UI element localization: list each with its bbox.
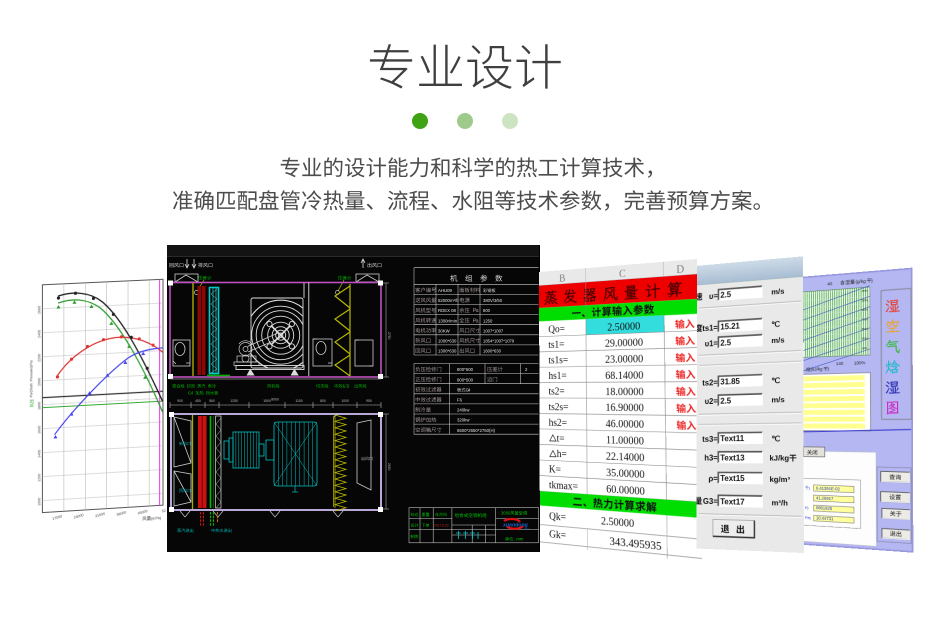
- svg-text:Text15: Text15: [720, 475, 745, 484]
- svg-text:m/s: m/s: [771, 396, 785, 405]
- svg-text:1500: 1500: [263, 399, 271, 403]
- svg-text:6500*2650*2750(H): 6500*2650*2750(H): [457, 428, 496, 433]
- svg-text:ts2s=: ts2s=: [549, 401, 569, 413]
- svg-text:ts2=: ts2=: [702, 379, 718, 388]
- svg-text:950: 950: [366, 399, 372, 403]
- svg-text:100%: 100%: [854, 360, 865, 365]
- svg-text:K=: K=: [549, 464, 562, 476]
- svg-text:60.00000: 60.00000: [606, 483, 645, 497]
- svg-text:ts1=: ts1=: [548, 339, 565, 351]
- svg-text:υ2=: υ2=: [705, 398, 718, 407]
- svg-text:22.14000: 22.14000: [606, 450, 645, 464]
- svg-text:Text13: Text13: [720, 454, 745, 463]
- svg-text:40: 40: [827, 281, 832, 286]
- svg-text:15.21: 15.21: [720, 322, 740, 332]
- svg-text:℃: ℃: [772, 435, 781, 444]
- svg-text:2750: 2750: [387, 332, 391, 340]
- svg-text:.com: .com: [523, 528, 529, 531]
- svg-text:2650: 2650: [387, 463, 391, 471]
- svg-text:1800: 1800: [37, 402, 41, 410]
- svg-text:23.00000: 23.00000: [605, 353, 643, 366]
- svg-text:1000: 1000: [341, 399, 349, 403]
- svg-text:2200: 2200: [37, 354, 41, 362]
- svg-text:1400: 1400: [37, 450, 41, 458]
- svg-text:1000: 1000: [37, 498, 41, 506]
- svg-text:2.50000: 2.50000: [607, 320, 640, 333]
- svg-text:1150: 1150: [295, 399, 302, 403]
- svg-text:800*500: 800*500: [457, 367, 474, 372]
- svg-text:320kw: 320kw: [457, 418, 470, 423]
- svg-text:800: 800: [483, 308, 491, 313]
- svg-text:: mm: : mm: [514, 537, 524, 542]
- svg-text:υ=: υ=: [709, 292, 718, 301]
- svg-text:560: 560: [209, 399, 215, 403]
- svg-text:Text11: Text11: [720, 435, 744, 444]
- svg-text:800: 800: [320, 399, 326, 403]
- svg-text:140: 140: [836, 361, 843, 366]
- svg-text:240kw: 240kw: [457, 408, 470, 413]
- svg-text:m³/h: m³/h: [772, 499, 789, 508]
- svg-text:(kJ/kg: (kJ/kg: [811, 367, 823, 372]
- svg-text:68.14000: 68.14000: [605, 369, 643, 381]
- svg-text:(g/kg: (g/kg: [855, 279, 865, 285]
- svg-text:100: 100: [862, 346, 868, 350]
- svg-text:31.85: 31.85: [720, 378, 740, 387]
- svg-text:υ1=: υ1=: [705, 340, 718, 349]
- svg-text:2.5: 2.5: [720, 291, 731, 300]
- svg-text:6.41391E-02: 6.41391E-02: [816, 486, 840, 492]
- svg-text:2600: 2600: [37, 306, 41, 314]
- svg-text:1300r/min: 1300r/min: [438, 318, 458, 323]
- svg-text:1854*1007*1079: 1854*1007*1079: [483, 339, 515, 344]
- svg-text:℃: ℃: [771, 320, 780, 329]
- svg-text:Pa/(Stath. Pressure)(Pa): Pa/(Stath. Pressure)(Pa): [29, 360, 33, 397]
- svg-text:900: 900: [177, 399, 183, 403]
- svg-text:1200: 1200: [37, 474, 41, 482]
- svg-text:16.90000: 16.90000: [605, 402, 643, 414]
- svg-text:800*500: 800*500: [457, 377, 474, 382]
- svg-text:ts1s=: ts1s=: [548, 354, 568, 366]
- svg-text:2017.6.22: 2017.6.22: [434, 524, 449, 528]
- svg-text:千): 千): [805, 484, 810, 490]
- svg-text:2000: 2000: [37, 378, 41, 386]
- svg-text:D: D: [676, 263, 684, 276]
- svg-text:): ): [871, 278, 873, 283]
- svg-text:Gk=: Gk=: [549, 528, 566, 541]
- svg-text:F6: F6: [457, 398, 463, 403]
- svg-text:1300*630: 1300*630: [438, 349, 457, 354]
- svg-text:46.00000: 46.00000: [606, 418, 644, 431]
- svg-text:hs2=: hs2=: [549, 417, 568, 429]
- svg-text:1000*630: 1000*630: [438, 339, 457, 344]
- svg-text:1250: 1250: [483, 318, 493, 323]
- svg-text:C: C: [619, 268, 626, 280]
- svg-text:hs1=: hs1=: [548, 370, 567, 381]
- svg-text:52000m³/h: 52000m³/h: [438, 298, 459, 303]
- svg-text:G3=: G3=: [703, 498, 718, 507]
- svg-text:Qo=: Qo=: [548, 323, 565, 335]
- svg-text:1250: 1250: [230, 399, 238, 403]
- svg-text:F): F): [805, 505, 808, 510]
- svg-text:RDEX 08: RDEX 08: [438, 308, 457, 313]
- svg-text:18.00000: 18.00000: [605, 386, 643, 398]
- svg-text:Pa): Pa): [805, 515, 811, 520]
- svg-text:tkmax=: tkmax=: [549, 479, 579, 492]
- svg-text:10.44731: 10.44731: [816, 516, 833, 522]
- svg-text:m/s: m/s: [771, 287, 785, 297]
- svg-text:450: 450: [195, 399, 201, 403]
- svg-text:kg/m³: kg/m³: [770, 476, 791, 485]
- svg-text:11.00000: 11.00000: [606, 434, 644, 447]
- svg-text:Text17: Text17: [720, 498, 745, 507]
- svg-text:2400: 2400: [37, 330, 41, 338]
- svg-text:29.00000: 29.00000: [605, 336, 643, 349]
- svg-text:1600: 1600: [37, 426, 41, 434]
- svg-text:t=: t=: [557, 433, 566, 445]
- svg-text:1007*1007: 1007*1007: [483, 328, 504, 333]
- svg-text:0861925: 0861925: [816, 506, 832, 512]
- svg-text:8000: 8000: [271, 398, 279, 402]
- svg-text:ts1=: ts1=: [702, 324, 718, 333]
- svg-text:35.00000: 35.00000: [606, 467, 645, 481]
- svg-text:2.5: 2.5: [720, 339, 731, 348]
- svg-text:Qk=: Qk=: [549, 510, 566, 523]
- svg-text:a: a: [475, 318, 478, 324]
- svg-text:h=: h=: [557, 448, 568, 460]
- svg-text:AHU09: AHU09: [438, 288, 452, 293]
- svg-text:ts2=: ts2=: [549, 386, 566, 397]
- svg-text:m/s: m/s: [771, 336, 785, 345]
- svg-text:30KW: 30KW: [438, 328, 451, 333]
- svg-text:1600*630: 1600*630: [483, 349, 502, 354]
- svg-text:(m³/h): (m³/h): [151, 516, 162, 521]
- svg-text:380V/3/50: 380V/3/50: [483, 298, 503, 303]
- svg-text:): ): [828, 367, 830, 372]
- svg-text:41.29917: 41.29917: [816, 496, 833, 502]
- svg-text:ρ=: ρ=: [708, 475, 717, 484]
- svg-text:kJ/kg: kJ/kg: [769, 455, 789, 464]
- svg-text:a: a: [475, 308, 478, 314]
- svg-text:2.5: 2.5: [720, 397, 731, 406]
- svg-text:B: B: [559, 273, 565, 285]
- svg-text:℃: ℃: [771, 377, 780, 386]
- svg-text:h3=: h3=: [704, 455, 718, 463]
- svg-text:ts3=: ts3=: [702, 436, 718, 445]
